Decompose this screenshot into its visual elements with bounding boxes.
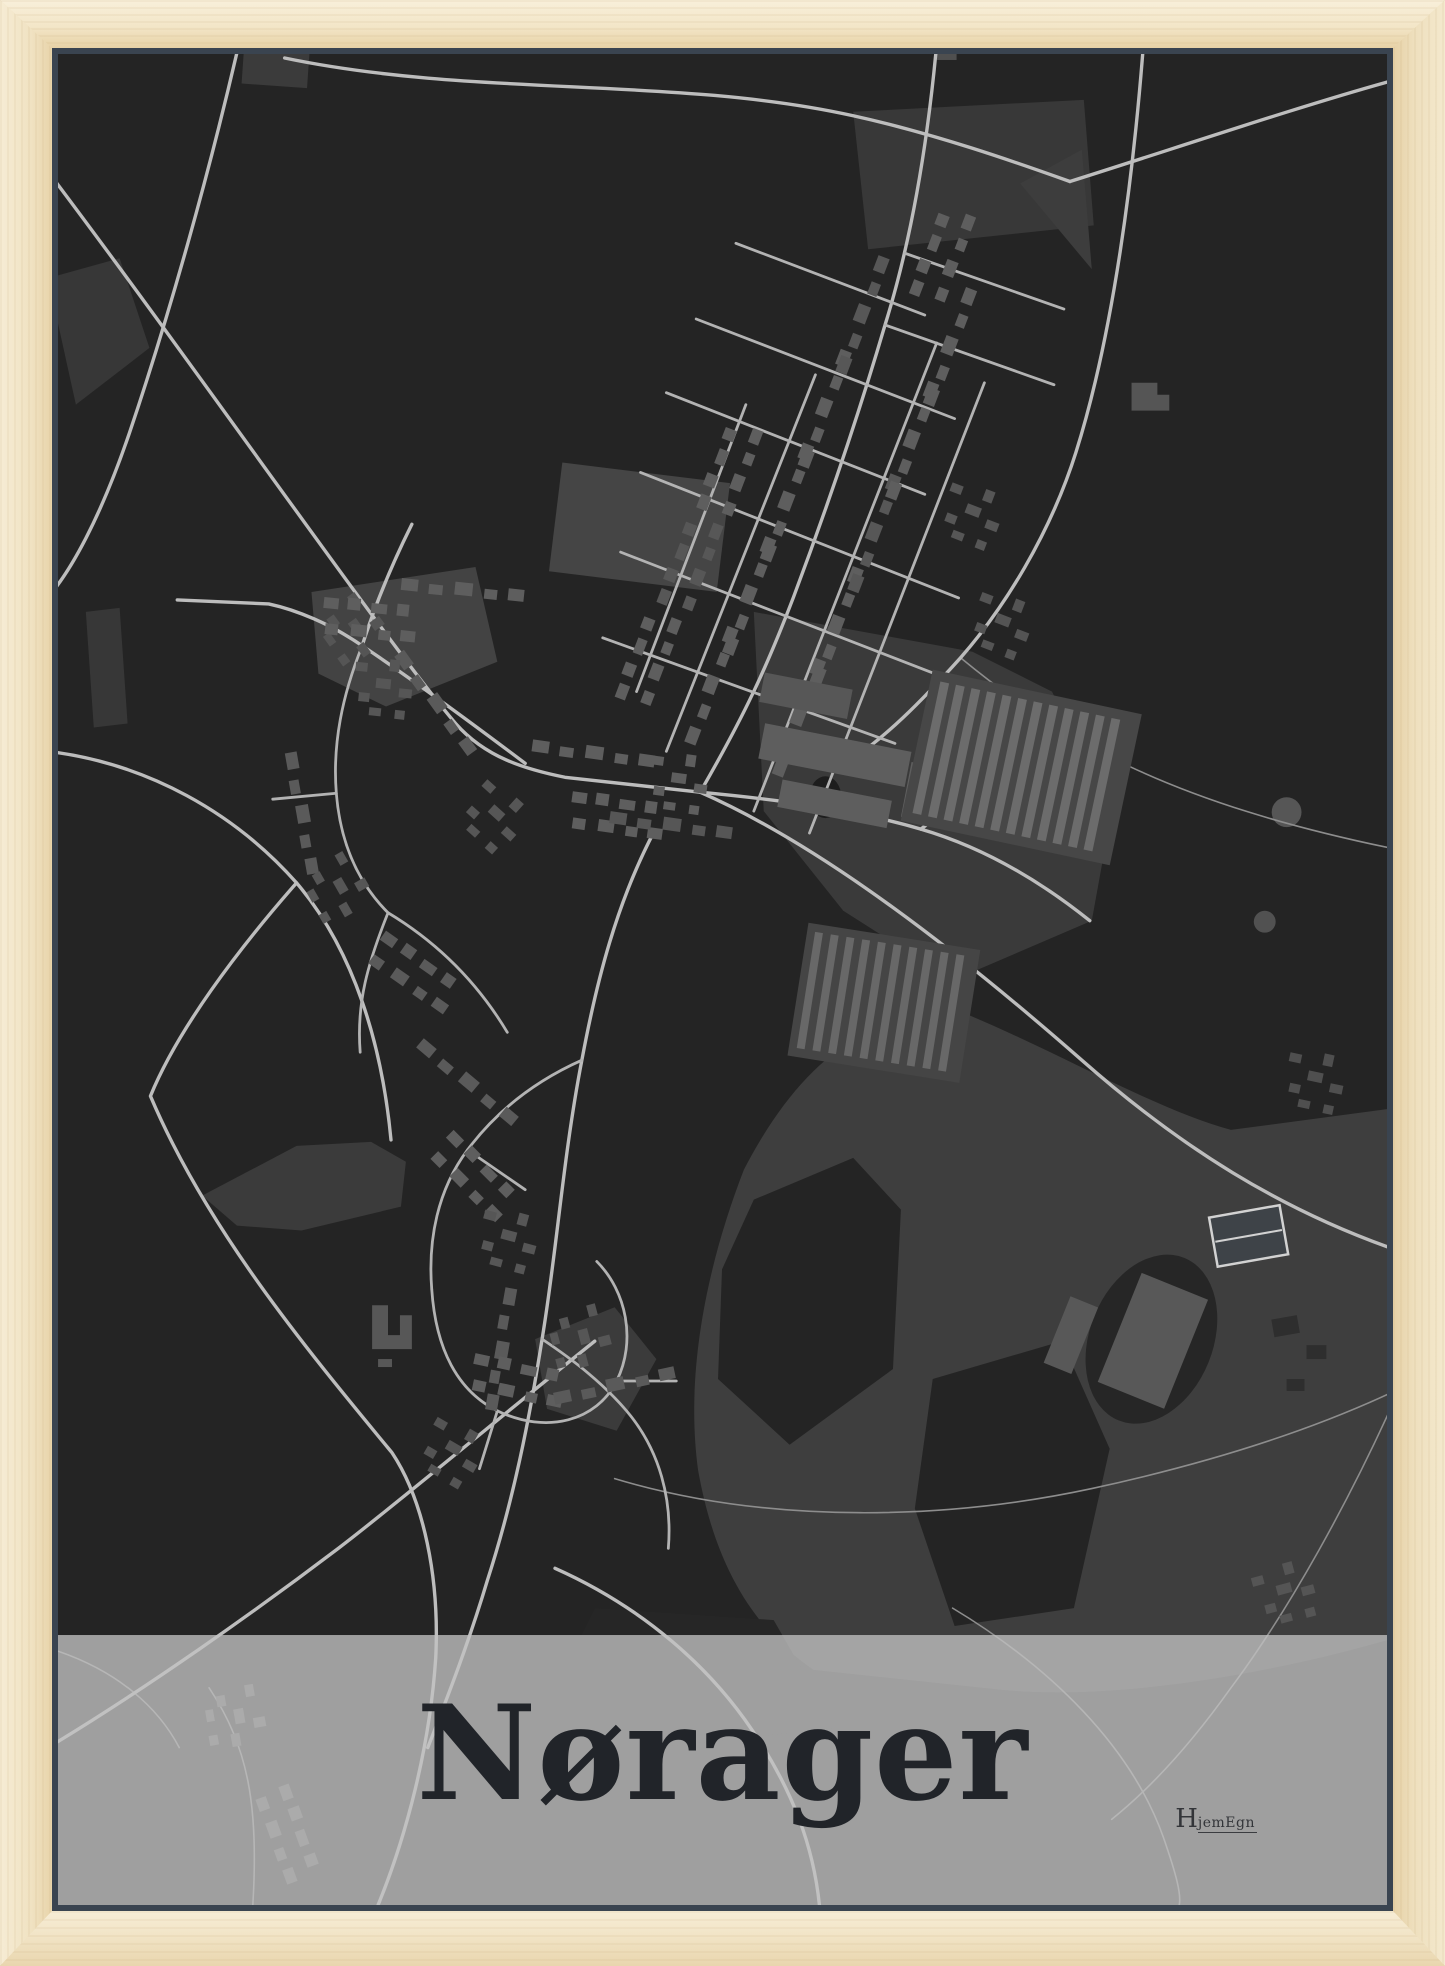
poster-title: Nørager	[58, 1688, 1387, 1819]
map-poster: Nørager HjemEgn	[52, 48, 1393, 1911]
frame-top-rail	[0, 0, 1445, 48]
hjemegn-logo-rest: jemEgn	[1198, 1815, 1257, 1833]
city-map	[58, 54, 1387, 1905]
hjemegn-logo-initial: H	[1175, 1806, 1198, 1832]
frame-right-rail	[1393, 0, 1445, 1966]
wood-frame: Nørager HjemEgn	[0, 0, 1445, 1966]
tennis-courts	[1209, 1205, 1288, 1267]
barn-complex	[787, 923, 980, 1083]
frame-bottom-rail	[0, 1911, 1445, 1966]
hjemegn-logo: HjemEgn	[1175, 1806, 1257, 1833]
frame-left-rail	[0, 0, 52, 1966]
